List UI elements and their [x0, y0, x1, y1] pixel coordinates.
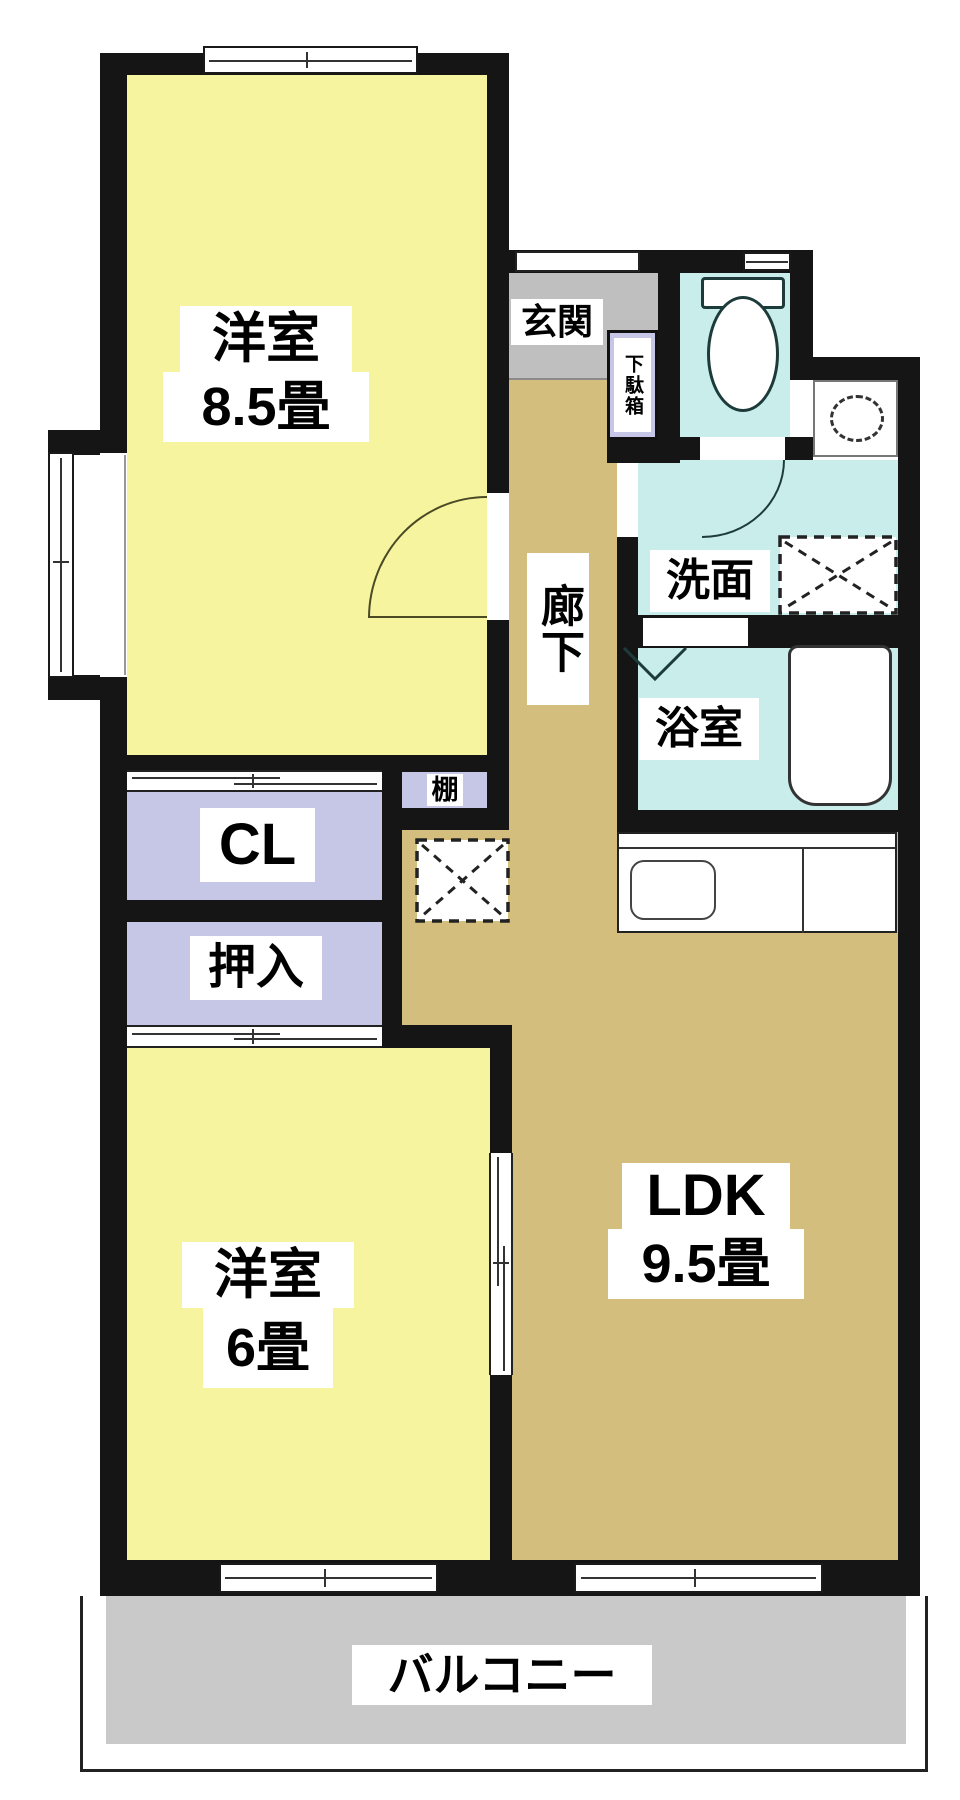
bathroom-door-opening [643, 618, 748, 646]
room-label-shelf: 棚 [427, 774, 463, 806]
room-label-bedroom85-size: 8.5畳 [163, 372, 369, 442]
sliding-door-icon [489, 1153, 513, 1375]
front-door [515, 251, 640, 272]
wall [382, 772, 402, 1025]
room-label-closet: CL [200, 808, 315, 882]
wall [658, 250, 680, 460]
bay-window-wall [48, 675, 103, 700]
folding-door-icon [620, 646, 690, 684]
wall [487, 620, 509, 772]
room-label-bedroom6-size: 6畳 [203, 1308, 333, 1388]
wall [617, 615, 638, 810]
bay-window-icon [48, 452, 74, 678]
wall [100, 900, 402, 922]
wall [785, 437, 813, 460]
shoe-cabinet: 下駄箱 [607, 330, 658, 440]
wall [487, 53, 509, 493]
kitchen-sink-icon [630, 860, 716, 920]
floor-plan: 下駄箱 洋室 8.5畳 玄関 廊下 洗面 浴室 棚 CL 押入 洋室 6畳 LD… [0, 0, 960, 1800]
bay-window-inner-line [124, 455, 126, 675]
wall [487, 772, 509, 830]
counter-edge-line [619, 847, 895, 849]
bathtub-icon [788, 645, 892, 806]
room-label-ldk-size: 9.5畳 [608, 1229, 804, 1299]
wall [898, 357, 920, 1596]
wall [490, 1375, 512, 1560]
window-icon [574, 1563, 823, 1593]
toilet-window-icon [743, 252, 791, 271]
room-label-balcony: バルコニー [352, 1645, 652, 1705]
wall [617, 810, 920, 832]
room-label-washroom: 洗面 [650, 550, 770, 612]
door-opening [487, 493, 509, 620]
sliding-door-icon [127, 770, 382, 792]
toilet-bowl-icon [707, 296, 779, 412]
room-label-bathroom: 浴室 [639, 698, 759, 760]
room-label-hallway: 廊下 [527, 553, 589, 705]
counter-divider-line [802, 847, 804, 933]
door-leaf [368, 616, 487, 618]
washer-pan-icon [813, 380, 898, 457]
toilet-door-opening [700, 437, 785, 460]
room-label-ldk-name: LDK [622, 1163, 790, 1229]
refrigerator-space-icon [415, 838, 510, 923]
washroom-door-opening [617, 463, 638, 537]
window-icon [219, 1563, 438, 1593]
wall [490, 1025, 512, 1155]
entrance-step-line [509, 378, 607, 380]
room-label-oshiire: 押入 [190, 936, 322, 1000]
wall [607, 440, 680, 463]
sliding-door-icon [127, 1025, 382, 1048]
window-icon [203, 46, 418, 74]
room-label-bedroom85-name: 洋室 [180, 306, 352, 372]
kitchen-counter-icon [617, 832, 897, 933]
wall [100, 755, 127, 1596]
drain-circle-icon [830, 395, 884, 442]
washer-space-icon [778, 535, 898, 615]
bay-window-opening [100, 453, 127, 677]
room-label-bedroom6-name: 洋室 [182, 1242, 354, 1308]
room-label-entrance: 玄関 [511, 299, 603, 345]
shoe-cabinet-label: 下駄箱 [614, 338, 651, 432]
